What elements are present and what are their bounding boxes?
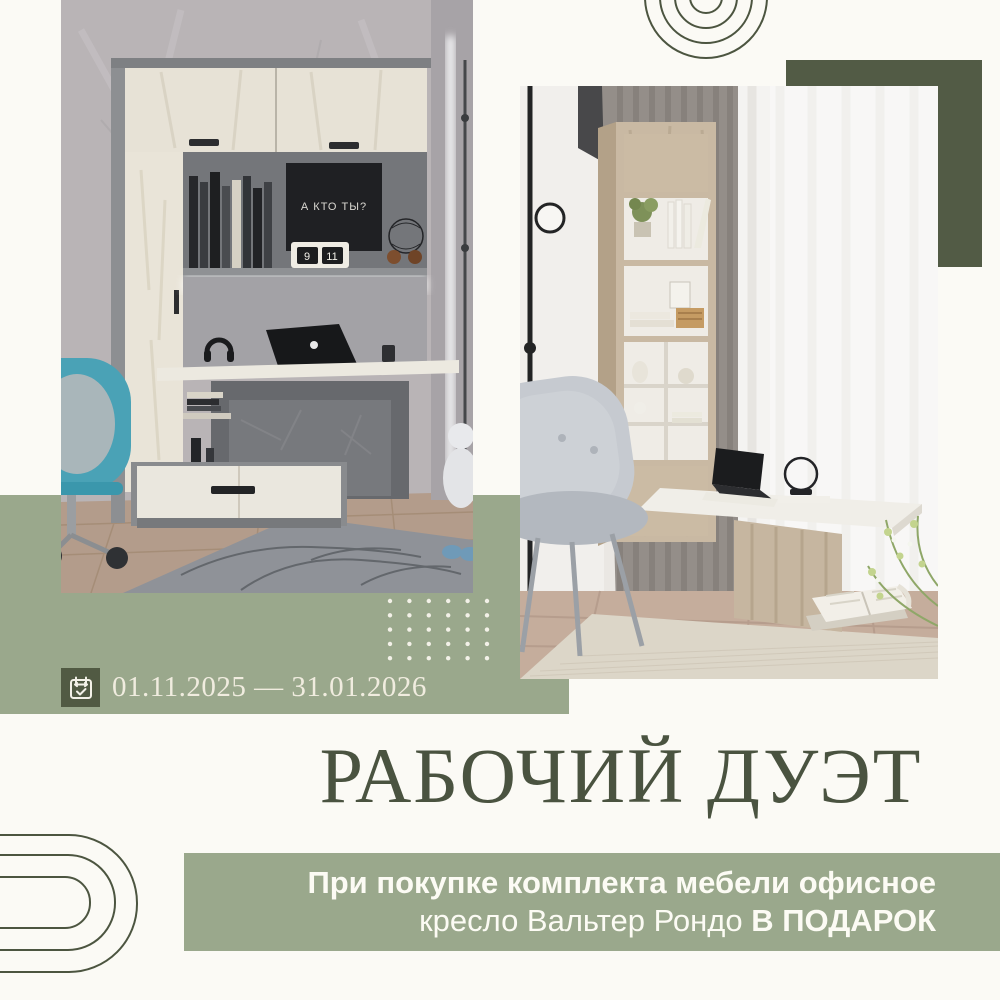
offer-line2-regular: кресло Вальтер Рондо — [419, 903, 751, 938]
dot-grid-icon — [386, 596, 496, 666]
photo-right-illustration — [520, 86, 938, 679]
photo-left-illustration: А КТО ТЫ? 9 11 — [61, 0, 473, 593]
page-title: РАБОЧИЙ ДУЭТ — [302, 731, 940, 821]
concentric-circles-icon — [640, 0, 780, 72]
photo-left-workstation: А КТО ТЫ? 9 11 — [61, 0, 473, 593]
photo-right-office — [520, 86, 938, 679]
promo-poster: А КТО ТЫ? 9 11 — [0, 0, 1000, 1000]
flip-clock-hour: 9 — [304, 251, 310, 263]
concentric-pills-icon — [0, 820, 160, 1000]
offer-line2-bold: В ПОДАРОК — [751, 903, 936, 938]
offer-line1: При покупке комплекта мебели офисное — [307, 864, 936, 902]
offer-banner: При покупке комплекта мебели офисное кре… — [184, 853, 1000, 951]
offer-line2: кресло Вальтер Рондо В ПОДАРОК — [419, 902, 936, 940]
poster-text: А КТО ТЫ? — [301, 201, 367, 213]
date-range: 01.11.2025 — 31.01.2026 — [112, 668, 427, 707]
calendar-icon — [68, 675, 94, 701]
date-chip — [61, 668, 100, 707]
flip-clock-minute: 11 — [326, 251, 337, 263]
